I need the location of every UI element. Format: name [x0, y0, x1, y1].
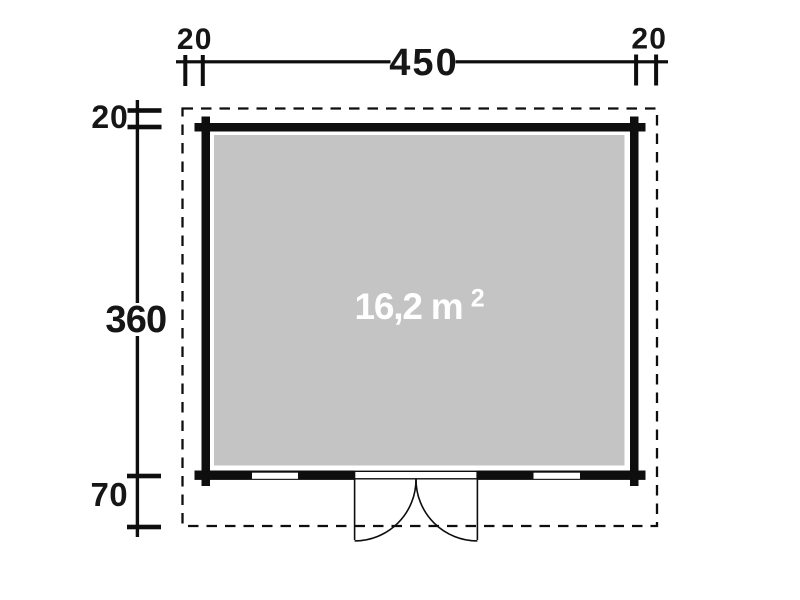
svg-text:20: 20 [631, 23, 667, 56]
svg-text:450: 450 [389, 42, 458, 84]
svg-text:20: 20 [177, 23, 213, 56]
svg-text:16,2 m: 16,2 m [355, 286, 463, 327]
svg-text:2: 2 [471, 285, 485, 313]
svg-text:70: 70 [90, 476, 128, 513]
svg-text:360: 360 [105, 299, 166, 341]
svg-text:20: 20 [91, 99, 128, 135]
